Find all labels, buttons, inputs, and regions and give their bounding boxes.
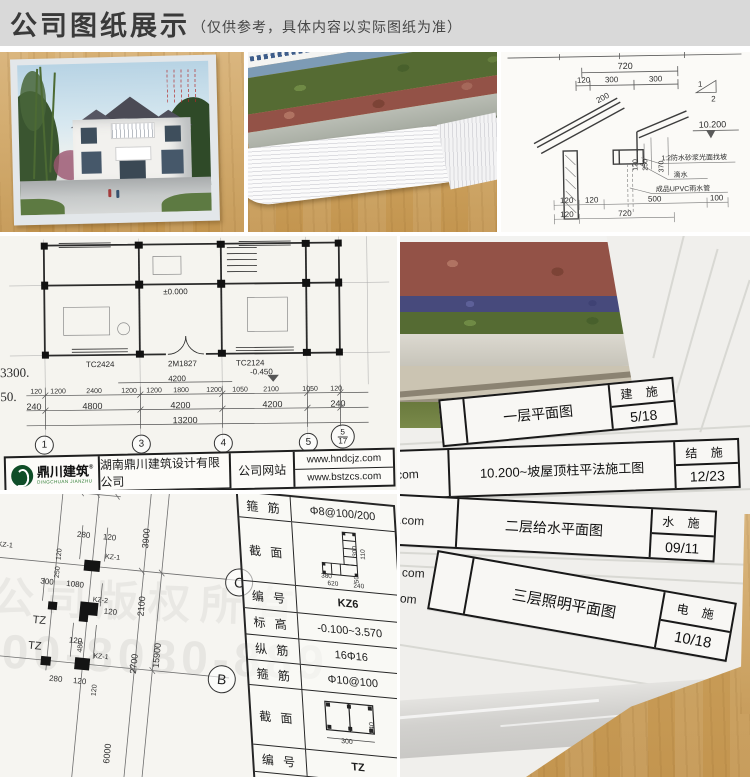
dim-label: 280 xyxy=(77,531,91,540)
logo-cn-text: 鼎川建筑 xyxy=(37,463,89,479)
dim-label: 100 xyxy=(710,194,723,202)
grid-bubble: 1 xyxy=(35,436,54,455)
level-label: -0.450 xyxy=(250,368,273,376)
section-diagram-rect: 300 240 xyxy=(302,690,397,758)
floor-plan-drawing: ±0.000 TC2424 TC2124 2M1827 -0.450 4200 … xyxy=(0,236,397,490)
window xyxy=(81,127,97,143)
slope-rise-label: 1 xyxy=(698,81,703,89)
dim-label: 1050 xyxy=(302,386,318,393)
window xyxy=(81,151,102,173)
dim-label: 110 xyxy=(361,549,368,560)
person-figure xyxy=(108,189,111,197)
dim-label: 120 xyxy=(577,77,590,85)
drawing-category: 水 施 xyxy=(652,509,715,537)
grid-bubble: 4 xyxy=(214,434,233,453)
dim-label: 250 xyxy=(642,159,649,171)
villa-rendering xyxy=(17,61,212,216)
dim-label: 2100 xyxy=(263,386,279,393)
page-title: 公司图纸展示 xyxy=(10,4,190,43)
l-section-icon xyxy=(296,524,395,594)
photo-booklet-edge xyxy=(248,52,497,232)
photo-floor-plan: ±0.000 TC2424 TC2124 2M1827 -0.450 4200 … xyxy=(0,236,397,490)
drawing-category: 结 施 xyxy=(675,440,738,466)
margin-note: 50. xyxy=(0,390,16,403)
eave-detail-linework xyxy=(501,52,750,232)
page-subtitle: （仅供参考，具体内容以实际图纸为准） xyxy=(192,9,462,37)
column-tag: KZ-1 xyxy=(0,541,13,549)
grid-bubble-label: B xyxy=(216,671,227,688)
drawing-name: 10.200~坡屋顶柱平法施工图 xyxy=(449,442,674,496)
dim-label: 1200 xyxy=(146,387,162,394)
dim-label: 6000 xyxy=(102,743,113,764)
page-edge-line xyxy=(675,249,718,394)
title-block-right: 水 施 09/11 xyxy=(649,509,715,560)
balcony-rail xyxy=(115,146,151,161)
photo-sheet-stack: 一层平面图 建 施 5/18 com 10.200~坡屋顶柱平法施工图 结 施 … xyxy=(400,236,750,777)
row-label: 标 高 xyxy=(245,608,299,638)
row-label: 截 面 xyxy=(239,517,296,585)
dim-label: 300 xyxy=(605,76,618,84)
dim-label: 120 xyxy=(91,684,99,696)
floor-plan-linework xyxy=(0,236,397,453)
planter-curb xyxy=(400,334,750,366)
steel-schedule-table: 箍 筋 Φ8@100/200 截 面 xyxy=(236,494,397,777)
title-block-right: 建 施 5/18 xyxy=(608,379,676,429)
dim-label: 50 xyxy=(354,576,361,584)
dim-label: 370 xyxy=(658,161,665,173)
title-block-prefix: com xyxy=(400,450,451,498)
dim-label: 1080 xyxy=(66,580,84,590)
website-urls-cell: www.hndcjz.com www.bstzcs.com xyxy=(295,450,394,487)
eave-detail-drawing: 720 120 300 300 200 1 2 10.200 120 250 3… xyxy=(501,52,750,232)
page-edge-line xyxy=(652,236,685,358)
plastic-sleeve xyxy=(10,55,220,226)
column-plan-drawing: 120 480 60 480 120 3900 280 120 120 250 … xyxy=(0,494,397,777)
dim-label: 2700 xyxy=(129,653,140,674)
sleeve-highlight xyxy=(400,699,599,719)
product-detail-image: 公司图纸展示 （仅供参考，具体内容以实际图纸为准） xyxy=(0,0,750,777)
drawing-page: 5/18 xyxy=(612,402,676,429)
row-label: 截 面 xyxy=(250,685,306,749)
website-url: www.hndcjz.com xyxy=(295,450,393,470)
dim-label: 240 xyxy=(353,583,364,591)
dim-label: 250 xyxy=(54,566,62,578)
drawing-title-bar: 鼎川建筑® DINGCHUAN JIANZHU 湖南鼎川建筑设计有限公司 客服热… xyxy=(4,448,396,490)
column-tag: KZ-1 xyxy=(93,653,109,661)
dim-label: 4800 xyxy=(82,402,102,411)
shrub-band xyxy=(400,242,750,296)
dim-label: 4200 xyxy=(170,401,190,410)
dim-label: 1050 xyxy=(232,386,248,393)
dim-label: 1800 xyxy=(173,387,189,394)
person-figure xyxy=(116,190,119,198)
level-label: 10.200 xyxy=(699,120,727,129)
photo-villa-rendering xyxy=(0,52,244,232)
dim-label: 120 xyxy=(632,159,639,171)
row-label: 编 号 xyxy=(243,581,297,612)
note-label: 成品UPVC雨水管 xyxy=(656,186,711,194)
level-label: ±0.000 xyxy=(163,288,188,296)
title-block-prefix: .com xyxy=(400,496,459,547)
dim-label: 720 xyxy=(618,210,631,218)
photo-column-plan: 公司版权所有 400-8080-889 xyxy=(0,494,397,777)
dim-label: 120 xyxy=(560,197,573,205)
lawn-left xyxy=(20,198,64,215)
window xyxy=(161,149,184,174)
dim-label: 120 xyxy=(102,533,116,542)
title-block-right: 结 施 12/23 xyxy=(673,440,739,488)
dim-label: 240 xyxy=(330,399,345,408)
rect-section-icon xyxy=(306,691,397,757)
window-tag: TC2424 xyxy=(86,361,115,369)
row-label: 编 号 xyxy=(253,745,307,776)
dim-label: 1200 xyxy=(206,387,222,394)
dim-label: 3900 xyxy=(141,528,152,549)
dim-label: 1200 xyxy=(50,388,66,395)
note-label: 滴水 xyxy=(674,172,688,179)
detail-callout-bubble: 5 17 xyxy=(331,424,355,448)
dim-label: 240 xyxy=(369,722,377,734)
website-url: www.bstzcs.com xyxy=(295,468,393,487)
dim-label: 2100 xyxy=(136,596,147,617)
title-block: 三层照明平面图 电 施 10/18 xyxy=(427,550,737,662)
logo-text-group: 鼎川建筑® DINGCHUAN JIANZHU xyxy=(37,464,94,485)
company-info-cell: 湖南鼎川建筑设计有限公司 客服热线：400-8080-889 xyxy=(100,453,232,490)
balcony-rail xyxy=(111,122,155,139)
dim-label: 2400 xyxy=(86,388,102,395)
column-tag: KZ-1 xyxy=(105,554,121,562)
url-fragment: om xyxy=(400,591,417,607)
drawing-name: 三层照明平面图 xyxy=(465,559,664,647)
callout-sheet: 17 xyxy=(336,437,349,445)
dim-label: 120 xyxy=(73,677,87,686)
grid-bubble-label: 4 xyxy=(221,438,227,449)
url-fragment: com xyxy=(402,565,425,580)
drawing-name: 二层给水平面图 xyxy=(457,499,651,557)
dim-label: 120 xyxy=(55,548,63,560)
slope-run-label: 2 xyxy=(711,95,716,103)
drawing-page: 09/11 xyxy=(651,534,714,560)
column-tag: TZ xyxy=(32,615,46,627)
dim-label: 120 xyxy=(103,608,117,617)
dim-label: 4200 xyxy=(168,375,186,383)
note-label: 1:2防水砂浆光面找坡 xyxy=(661,154,727,162)
grid-bubble-label: 1 xyxy=(42,440,48,451)
company-name: 湖南鼎川建筑设计有限公司 xyxy=(100,453,230,490)
door-tag: 2M1827 xyxy=(168,360,197,368)
dim-label: 1200 xyxy=(121,388,137,395)
dim-label: 120 xyxy=(330,385,342,392)
dim-label: 300 xyxy=(352,546,359,558)
dim-label: 720 xyxy=(618,62,633,71)
drawing-page: 12/23 xyxy=(676,464,739,488)
section-header: 公司图纸展示 （仅供参考，具体内容以实际图纸为准） xyxy=(0,0,750,46)
window xyxy=(165,125,181,141)
dim-label: 280 xyxy=(49,675,63,684)
column-tag: TZ xyxy=(28,641,42,653)
title-block-right: 电 施 10/18 xyxy=(654,592,735,660)
margin-note: 3300. xyxy=(0,366,29,379)
dim-label: 13200 xyxy=(173,416,198,425)
grid-bubble-label: 3 xyxy=(139,439,145,450)
dim-label: 300 xyxy=(649,75,662,83)
website-label-cell: 公司网站 xyxy=(231,452,296,488)
company-logo: 鼎川建筑® DINGCHUAN JIANZHU xyxy=(6,456,101,490)
dim-label: 620 xyxy=(327,581,338,589)
dim-label: 120 xyxy=(30,389,42,396)
section-diagram-l: 380 620 240 300 110 50 xyxy=(292,522,397,595)
dim-label: 120 xyxy=(68,636,82,645)
page-edge-line xyxy=(699,280,750,433)
logo-subtext: DINGCHUAN JIANZHU xyxy=(37,479,94,485)
red-seal-text xyxy=(166,69,197,104)
dim-label: 500 xyxy=(648,195,661,203)
grid-bubble: 3 xyxy=(132,435,151,454)
dim-label: 300 xyxy=(40,577,54,586)
flower-band xyxy=(400,296,750,312)
photo-eave-detail: 720 120 300 300 200 1 2 10.200 120 250 3… xyxy=(501,52,750,232)
logo-text: 鼎川建筑® xyxy=(37,464,94,478)
dim-label: 300 xyxy=(341,738,353,746)
dim-label: 120 xyxy=(560,211,573,219)
dim-label: 4200 xyxy=(262,400,282,409)
dim-label: 120 xyxy=(585,196,598,204)
desk-edge-sliver xyxy=(740,514,750,714)
dingchuan-logo-icon xyxy=(11,464,33,486)
registered-mark: ® xyxy=(89,464,94,470)
grid-bubble-label: 5 xyxy=(305,437,311,448)
column-tag: KZ-2 xyxy=(92,597,108,605)
dim-label: 240 xyxy=(26,403,41,412)
